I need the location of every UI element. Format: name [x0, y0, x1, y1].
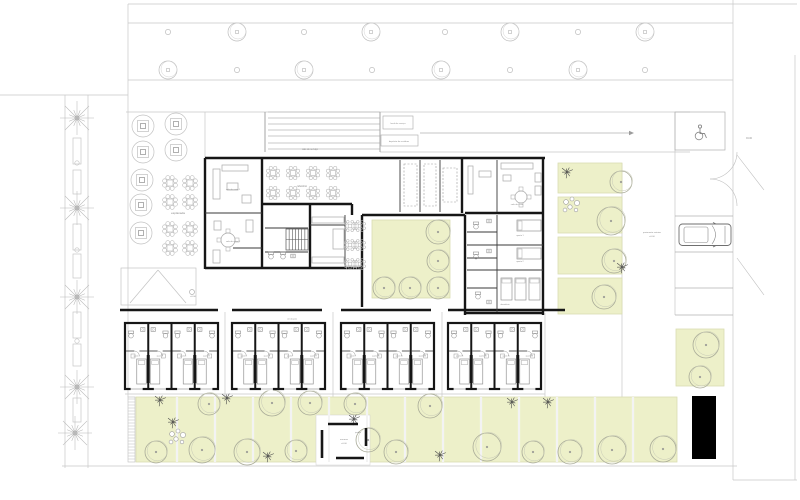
chair-icon [309, 166, 312, 169]
solid-block [692, 396, 716, 459]
palm-tree-icon [77, 106, 89, 118]
palm-tree-icon [77, 297, 89, 309]
sink-drain-icon [358, 329, 360, 331]
chair-icon [326, 189, 329, 192]
sink-drain-icon [488, 301, 490, 303]
toilet-icon [498, 333, 503, 338]
toilet-icon [426, 333, 431, 338]
restaurant-label: refeitório [297, 184, 308, 188]
sink-icon [510, 328, 514, 332]
chair-icon [190, 241, 194, 245]
chair-icon [183, 225, 187, 229]
chair-icon [183, 179, 187, 183]
toilet-icon [163, 333, 168, 338]
sink-icon [487, 219, 491, 223]
chair-icon [286, 194, 289, 197]
chair-icon [334, 176, 337, 179]
lounge2-label: sala de estar 2 [226, 240, 241, 243]
planter-core-icon [141, 124, 146, 129]
umbrella-tree-icon [165, 113, 187, 135]
chair-icon [355, 242, 358, 245]
room-label: quarto 10 [372, 354, 379, 357]
chair-icon [190, 232, 194, 236]
palm-tree-icon [65, 285, 77, 297]
equipment [404, 164, 417, 206]
toilet-icon [129, 333, 134, 338]
gate-line [737, 258, 764, 295]
chair-icon [190, 222, 194, 226]
chair-icon [289, 166, 292, 169]
chair-icon [274, 176, 277, 179]
sink-drain-icon [249, 329, 251, 331]
street-tree-icon [636, 23, 654, 41]
chair-icon [266, 189, 269, 192]
sink-icon [474, 328, 478, 332]
toilet-icon [476, 294, 481, 299]
chair-icon [163, 229, 167, 233]
stone-icon [170, 432, 175, 437]
furniture [503, 175, 511, 181]
umbrella-tree-icon [131, 169, 153, 191]
chair-icon [334, 196, 337, 199]
arrow-head-icon [629, 131, 634, 135]
chair-icon [355, 223, 358, 226]
toilet-icon [345, 333, 350, 338]
room-label: quarto 7 [287, 354, 293, 357]
chair-icon [183, 248, 187, 252]
entry-layer [121, 268, 196, 305]
chair-icon [274, 196, 277, 199]
stone-icon [570, 197, 574, 201]
chair-icon [286, 174, 289, 177]
stone-icon [564, 200, 569, 205]
street-dot-icon [507, 67, 512, 72]
chair-icon [276, 169, 279, 172]
room-label: quarto 9 [350, 354, 356, 357]
wardrobe-icon [516, 355, 519, 383]
stone-icon [174, 437, 178, 441]
furniture [312, 257, 344, 263]
chair-icon [276, 174, 279, 177]
chair-icon [217, 238, 221, 242]
street-tree-icon [159, 61, 177, 79]
chair-icon [183, 202, 187, 206]
terrace-label: esplanada [171, 211, 185, 215]
stone-icon [180, 440, 184, 444]
room-label: quarto 11 [396, 354, 403, 357]
furniture [222, 165, 248, 171]
table-icon [291, 171, 296, 176]
chair-icon [163, 202, 167, 206]
bed-icon [515, 278, 526, 300]
chair-icon [173, 229, 177, 233]
palm-tree-icon [77, 387, 89, 399]
chair-icon [173, 244, 177, 248]
chair-icon [266, 169, 269, 172]
street-trees-layer [159, 23, 654, 79]
chair-icon [170, 205, 174, 209]
palm-tree-icon [77, 375, 89, 387]
corridor-label: circulação [287, 318, 298, 321]
chair-icon [183, 198, 187, 202]
sink-drain-icon [488, 220, 490, 222]
chair-icon [266, 174, 269, 177]
chair-icon [316, 189, 319, 192]
street-tree-icon [295, 61, 313, 79]
chair-icon [289, 176, 292, 179]
wheelchair-icon [698, 125, 701, 128]
bed-icon [529, 278, 540, 300]
entry-canopy [121, 268, 196, 305]
planter-core-icon [174, 122, 179, 127]
chair-icon [363, 227, 366, 230]
sink-icon [357, 328, 361, 332]
planter-core-icon [141, 150, 146, 155]
chair-icon [269, 166, 272, 169]
umbrella-tree-icon [132, 141, 154, 163]
planter-box-icon [138, 121, 149, 132]
chair-icon [309, 186, 312, 189]
chair-icon [190, 251, 194, 255]
stone-icon [176, 429, 180, 433]
chair-icon [355, 227, 358, 230]
room-label: quarto 16 [526, 354, 533, 357]
chair-icon [294, 196, 297, 199]
tree-trunk-icon [303, 69, 306, 72]
chair-icon [329, 186, 332, 189]
chair-icon [166, 195, 170, 199]
service-box1-label: local de serviço [390, 122, 406, 125]
sink-drain-icon [522, 329, 524, 331]
sink-icon [248, 328, 252, 332]
chair-icon [329, 196, 332, 199]
garden-label: jardim [354, 431, 361, 434]
sink-drain-icon [465, 329, 467, 331]
street-dot-icon [575, 29, 580, 34]
street-tree-icon [432, 61, 450, 79]
street-planter [73, 224, 81, 250]
furniture [333, 229, 344, 249]
street-dot-icon [234, 67, 239, 72]
chair-icon [190, 176, 194, 180]
umbrella-tree-icon [132, 115, 154, 137]
table-icon [348, 243, 352, 247]
toilet-icon [452, 333, 457, 338]
bedroom1-label: quarto 1 [516, 234, 524, 237]
room-label: quarto 8 [310, 354, 316, 357]
stone-icon [574, 200, 579, 205]
street-tree-icon [161, 61, 177, 77]
room-label: quarto 12 [419, 354, 426, 357]
street-tree-icon [297, 61, 313, 77]
chair-icon [166, 205, 170, 209]
floor-plan-canvas: quarto 1quarto 2quarto 3quarto 4quarto 5… [0, 0, 800, 500]
toilet-icon [210, 333, 215, 338]
bed-icon [517, 248, 541, 259]
chair-icon [170, 186, 174, 190]
street-dot-icon [642, 67, 647, 72]
lounge1-label: sala de estar 1 [226, 188, 241, 191]
street-tree-icon [362, 23, 380, 41]
street-tree-icon [569, 61, 587, 79]
chair-icon [173, 183, 177, 187]
courtyard-lawn [372, 220, 450, 298]
chair-icon [336, 194, 339, 197]
table-icon [311, 171, 316, 176]
street-planter [73, 312, 81, 338]
umbrella-tree-icon [130, 194, 152, 216]
table-icon [348, 262, 352, 266]
chair-icon [193, 198, 197, 202]
wheelchair-icon [695, 132, 703, 140]
table-icon [187, 245, 193, 251]
table-icon [167, 245, 173, 251]
chair-icon [314, 166, 317, 169]
chair-icon [183, 244, 187, 248]
chair-icon [266, 194, 269, 197]
chair-icon [186, 176, 190, 180]
palm-tree-icon [77, 118, 89, 130]
chair-icon [193, 225, 197, 229]
bed-icon [517, 220, 541, 231]
pavilion-level-label: ±0.00 [341, 443, 347, 445]
table-icon [271, 171, 276, 176]
street-dot-icon [165, 29, 170, 34]
sink-drain-icon [475, 329, 477, 331]
chair-icon [163, 198, 167, 202]
chair-icon [355, 261, 358, 264]
sink-icon [151, 328, 155, 332]
chair-icon [163, 179, 167, 183]
table-icon [291, 191, 296, 196]
toilet-icon [317, 333, 322, 338]
stone-icon [574, 208, 578, 212]
wardrobe-icon [363, 355, 366, 383]
tree-trunk-icon [577, 69, 580, 72]
chair-icon [183, 229, 187, 233]
chair-icon [294, 176, 297, 179]
chair-icon [355, 246, 358, 249]
sink-drain-icon [306, 329, 308, 331]
room-label: quarto 5 [241, 354, 247, 357]
chair-icon [170, 232, 174, 236]
side-green-plot [558, 237, 622, 274]
planter-box-icon [136, 200, 147, 211]
sink-drain-icon [488, 250, 490, 252]
palm-trees-layer [58, 101, 94, 450]
tree-trunk-icon [370, 31, 373, 34]
tv-room-label: sala de estar [511, 203, 524, 206]
chair-icon [316, 174, 319, 177]
street-tree-icon [364, 23, 380, 39]
room-label: quarto 3 [180, 354, 186, 357]
palm-tree-icon [75, 433, 87, 445]
chair-icon [183, 183, 187, 187]
table-icon [187, 180, 193, 186]
chair-icon [226, 229, 230, 233]
tree-trunk-icon [440, 69, 443, 72]
tree-trunk-icon [644, 31, 647, 34]
sink-icon [187, 328, 191, 332]
chair-icon [336, 189, 339, 192]
table-icon [167, 226, 173, 232]
chair-icon [276, 189, 279, 192]
chair-icon [296, 194, 299, 197]
equipment [443, 168, 457, 202]
sink-icon [305, 328, 309, 332]
street-planter [73, 138, 81, 164]
parking-level-label: ±0.00 [649, 236, 655, 238]
furniture [535, 186, 541, 195]
chair-icon [193, 179, 197, 183]
palm-tree-icon [65, 196, 77, 208]
chair-icon [193, 229, 197, 233]
table-icon [311, 191, 316, 196]
sink-icon [464, 328, 468, 332]
sink-icon [521, 328, 525, 332]
wheelchair-icon [700, 129, 707, 139]
toilet-icon [533, 333, 538, 338]
canopy-brace [158, 270, 186, 303]
chair-icon [363, 265, 366, 268]
chair-icon [166, 232, 170, 236]
tree-trunk-icon [167, 69, 170, 72]
sink-icon [367, 328, 371, 332]
wardrobe-icon [193, 355, 196, 383]
chair-icon [274, 166, 277, 169]
street-dot-icon [75, 161, 79, 165]
service-ramp-label: cais de serviço [302, 148, 318, 151]
street-planter [73, 170, 81, 194]
street-dot-icon [301, 29, 306, 34]
street-tree-icon [434, 61, 450, 77]
chair-icon [274, 186, 277, 189]
street-tree-icon [571, 61, 587, 77]
chair-icon [296, 189, 299, 192]
chair-icon [186, 241, 190, 245]
car-cabin-icon [684, 227, 708, 243]
chair-icon [163, 183, 167, 187]
planter-box-icon [137, 175, 148, 186]
terrace-layer [130, 113, 197, 255]
stone-icon [169, 440, 173, 444]
floor-plan-page: quarto 1quarto 2quarto 3quarto 4quarto 5… [0, 0, 800, 500]
palm-tree-icon [75, 421, 87, 433]
tree-trunk-icon [236, 31, 239, 34]
palm-tree-icon [65, 387, 77, 399]
chair-icon [173, 198, 177, 202]
chair-icon [306, 189, 309, 192]
car-windshield-icon [712, 226, 716, 245]
chair-icon [329, 166, 332, 169]
chair-icon [286, 169, 289, 172]
chair-icon [329, 176, 332, 179]
toilet-icon [175, 333, 180, 338]
level-right-label: ±0.00 [746, 137, 753, 140]
sink-drain-icon [415, 329, 417, 331]
palm-tree-icon [65, 118, 77, 130]
chair-icon [166, 251, 170, 255]
sink-icon [487, 300, 491, 304]
toilet-icon [281, 254, 286, 259]
sink-drain-icon [199, 329, 201, 331]
chair-icon [306, 169, 309, 172]
chair-icon [326, 194, 329, 197]
chair-icon [316, 194, 319, 197]
entry-marker-icon [190, 290, 195, 295]
sink-icon [294, 328, 298, 332]
umbrella-tree-icon [130, 222, 152, 244]
chair-icon [269, 176, 272, 179]
chair-icon [511, 195, 515, 199]
table-icon [187, 199, 193, 205]
chair-icon [289, 186, 292, 189]
stone-icon [568, 205, 572, 209]
room-label: quarto 13 [456, 354, 463, 357]
boundary-ticks [128, 397, 135, 462]
stone-icon [180, 432, 185, 437]
pavilion-label: arrumos [340, 438, 349, 441]
sink-icon [141, 328, 145, 332]
sink-icon [403, 328, 407, 332]
planter-box-icon [138, 147, 149, 158]
wardrobe-icon [147, 355, 150, 383]
street-dot-icon [75, 339, 79, 343]
canopy-brace [130, 270, 158, 303]
street-tree-icon [503, 23, 519, 39]
chair-icon [314, 196, 317, 199]
chair-icon [170, 195, 174, 199]
chair-icon [336, 174, 339, 177]
chair-icon [294, 166, 297, 169]
chair-icon [170, 251, 174, 255]
planter-core-icon [174, 148, 179, 153]
sink-drain-icon [404, 329, 406, 331]
chair-icon [173, 225, 177, 229]
chair-icon [186, 195, 190, 199]
chair-icon [314, 176, 317, 179]
chair-icon [190, 195, 194, 199]
sink-icon [487, 249, 491, 253]
service-yard-layer [265, 112, 634, 152]
furniture [312, 217, 344, 223]
chair-icon [527, 195, 531, 199]
chair-icon [269, 186, 272, 189]
chair-icon [316, 169, 319, 172]
street-tree-icon [230, 23, 246, 39]
room-label: quarto 14 [479, 354, 486, 357]
chair-icon [173, 179, 177, 183]
table-icon [167, 180, 173, 186]
tree-trunk-icon [509, 31, 512, 34]
wardrobe-icon [254, 355, 257, 383]
palm-tree-icon [65, 106, 77, 118]
furniture [246, 220, 253, 232]
chair-icon [173, 202, 177, 206]
furniture [535, 173, 541, 182]
room-label: quarto 6 [264, 354, 270, 357]
chair-icon [296, 174, 299, 177]
sink-drain-icon [188, 329, 190, 331]
chair-icon [306, 194, 309, 197]
toilet-icon [270, 333, 275, 338]
street-tree-icon [501, 23, 519, 41]
chair-icon [276, 194, 279, 197]
chair-icon [363, 246, 366, 249]
room-label: quarto 4 [203, 354, 209, 357]
chair-icon [519, 187, 523, 191]
sink-icon [258, 328, 262, 332]
